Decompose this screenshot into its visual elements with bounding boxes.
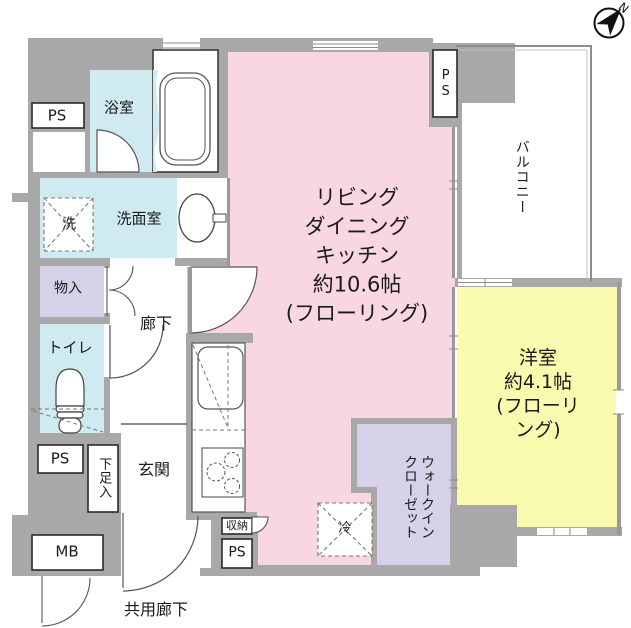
void-space (33, 132, 85, 172)
western-balcony-window (458, 279, 512, 286)
meter-box-door-arc (42, 576, 90, 626)
label-balcony: バルコニー (512, 140, 530, 215)
label-storage: 物入 (54, 280, 82, 298)
label-ps-bottom: PS (228, 544, 245, 562)
label-meter-box: MB (55, 543, 78, 562)
label-shoe-cabinet: 下足入 (95, 457, 111, 499)
entrance-door-arc (123, 513, 198, 591)
western-bottom-window (537, 528, 587, 535)
label-ps-top-right: PS (437, 68, 453, 100)
label-refrigerator: 冷 (338, 521, 351, 537)
label-walk-in-closet: ウォークイン クローゼット (401, 455, 435, 539)
storage-door-arcs (107, 266, 135, 316)
label-western-room: 洋室 約4.1帖 (フローリング) (492, 346, 585, 442)
label-common-corridor: 共用廊下 (124, 600, 188, 620)
label-washroom: 洗面室 (116, 210, 161, 229)
label-ldk: リビング ダイニング キッチン 約10.6帖 (フローリング) (286, 184, 428, 329)
toilet-fixture (56, 369, 84, 433)
label-ps-top-left: PS (48, 107, 67, 126)
label-toilet: トイレ (47, 339, 92, 358)
label-entrance: 玄関 (138, 460, 170, 480)
kitchen-counter (192, 343, 245, 512)
label-closet: 収納 (226, 519, 248, 533)
bathtub (153, 50, 218, 172)
floor-plan: リビング ダイニング キッチン 約10.6帖 (フローリング) 洋室 約4.1帖… (0, 0, 631, 628)
label-bathroom: 浴室 (104, 99, 134, 118)
label-washing-machine: 洗 (62, 216, 76, 234)
label-ps-mid-left: PS (51, 450, 70, 469)
label-hallway: 廊下 (140, 314, 172, 334)
ldk-top-window (313, 41, 378, 50)
